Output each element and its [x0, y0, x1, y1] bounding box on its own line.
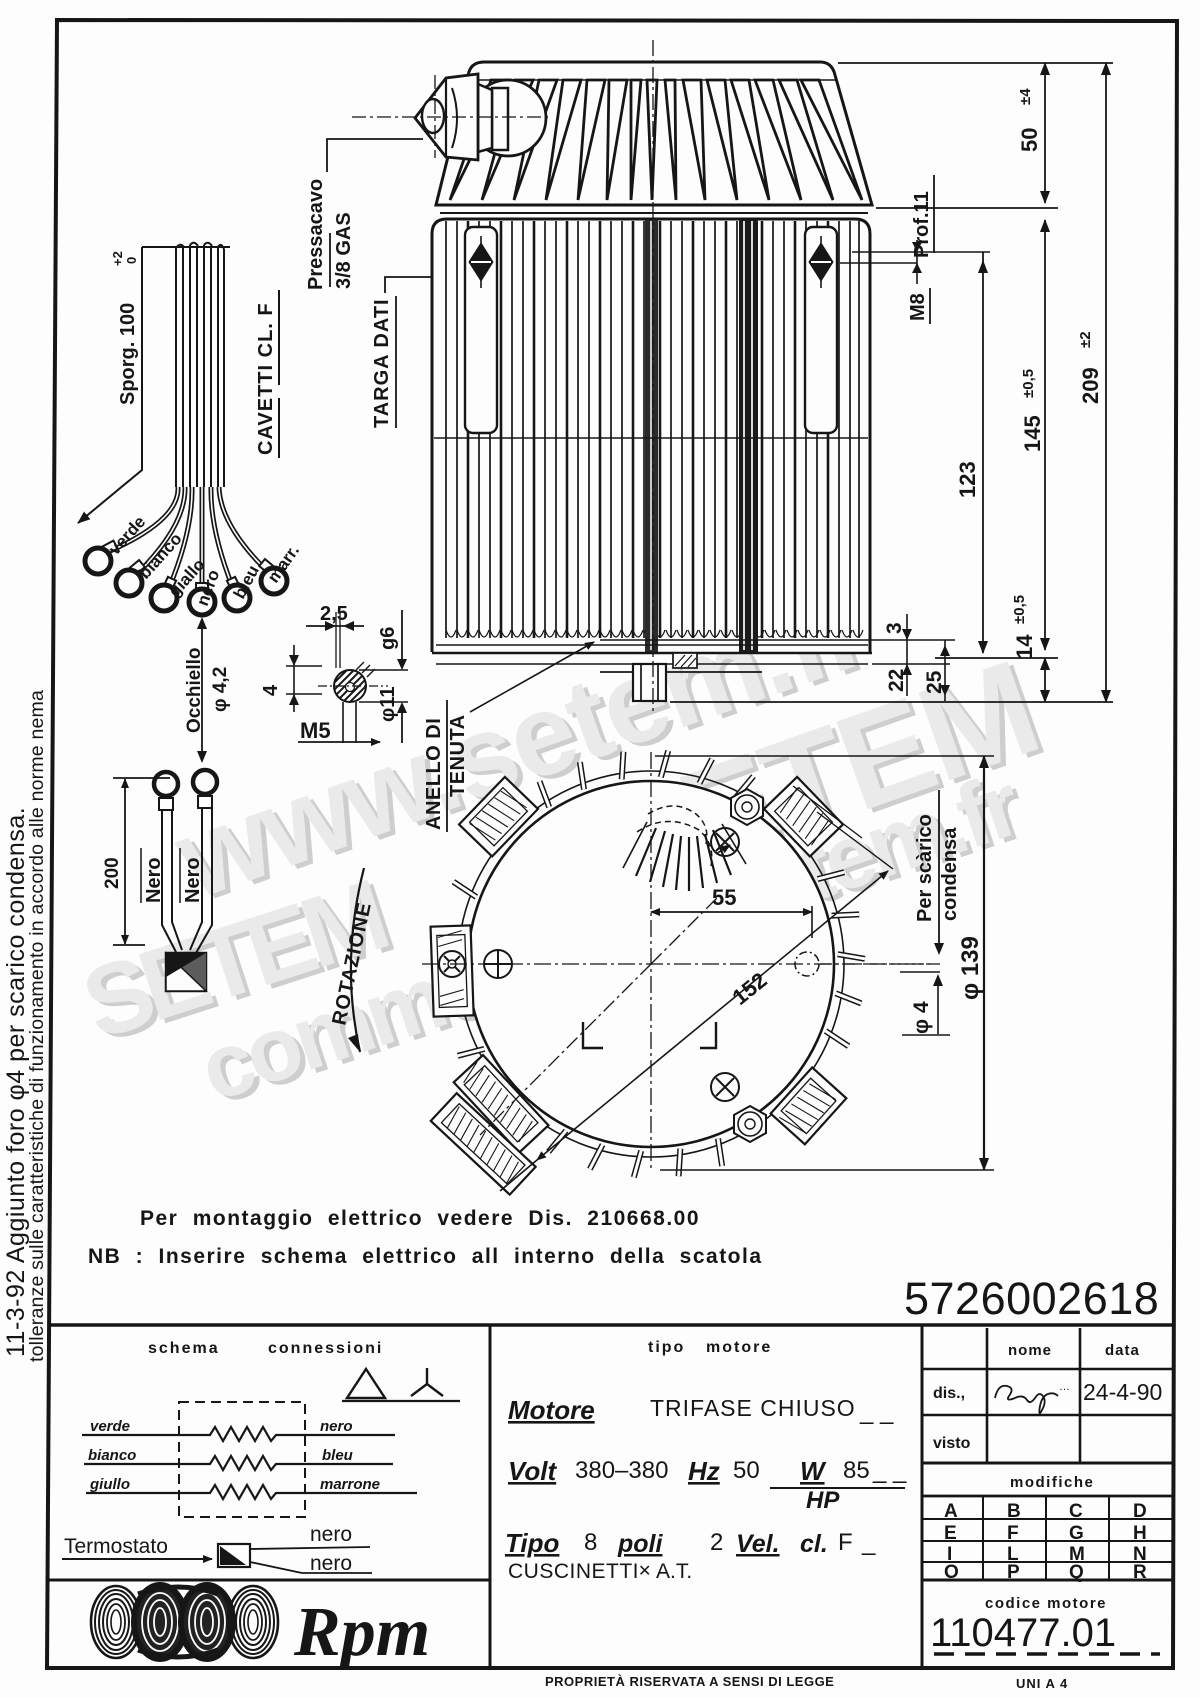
svg-text:55: 55 — [712, 885, 736, 910]
svg-text:F: F — [838, 1529, 853, 1556]
svg-text:14: 14 — [1012, 634, 1037, 659]
svg-text:tolleranze sulle caratteristic: tolleranze sulle caratteristiche di funz… — [26, 690, 48, 1362]
svg-text:φ 139: φ 139 — [957, 936, 984, 1000]
svg-text:O: O — [944, 1562, 959, 1583]
svg-text:Q: Q — [1069, 1562, 1084, 1583]
svg-text:Per montaggio elettrico ved: Per montaggio elettrico vedere Dis. 2106… — [140, 1207, 700, 1230]
svg-text:85: 85 — [843, 1457, 870, 1484]
svg-text:Rpm: Rpm — [293, 1594, 430, 1671]
svg-text:UNI A 4: UNI A 4 — [1016, 1676, 1068, 1691]
svg-text:NB : Inserire schema elett: NB : Inserire schema elettrico all inter… — [88, 1245, 763, 1268]
svg-text:verde: verde — [90, 1418, 130, 1435]
svg-text:poli: poli — [617, 1530, 663, 1558]
svg-text:E: E — [944, 1523, 957, 1544]
svg-text:W: W — [800, 1456, 827, 1486]
svg-text:2: 2 — [710, 1529, 723, 1556]
svg-text:bianco: bianco — [88, 1447, 136, 1464]
svg-text:_ _: _ _ — [872, 1457, 907, 1484]
svg-text:_: _ — [861, 1529, 876, 1556]
svg-text:nero: nero — [310, 1552, 352, 1575]
svg-text:Nero: Nero — [182, 857, 204, 903]
svg-text:Nero: Nero — [143, 857, 165, 903]
svg-text:4: 4 — [260, 684, 282, 696]
svg-text:modifiche: modifiche — [1010, 1474, 1094, 1491]
svg-text:123: 123 — [955, 461, 980, 498]
svg-text:TRIFASE CHIUSO: TRIFASE CHIUSO — [650, 1395, 856, 1421]
svg-text:marrone: marrone — [320, 1476, 380, 1493]
svg-text:±0,5: ±0,5 — [1011, 595, 1028, 624]
svg-text:+2: +2 — [110, 251, 125, 266]
svg-text:50: 50 — [1017, 128, 1042, 152]
svg-text:schema: schema — [148, 1340, 220, 1357]
svg-text:A.T.: A.T. — [656, 1560, 692, 1583]
svg-text:φ 4,2: φ 4,2 — [210, 667, 231, 712]
svg-text:dis.,: dis., — [933, 1385, 965, 1402]
svg-text:HP: HP — [806, 1487, 840, 1514]
svg-text:G: G — [1069, 1523, 1084, 1544]
svg-text:Vel.: Vel. — [736, 1530, 780, 1558]
svg-text:Motore: Motore — [508, 1395, 595, 1425]
svg-text:nero: nero — [310, 1523, 352, 1546]
svg-text:Termostato: Termostato — [64, 1535, 168, 1558]
svg-text:g6: g6 — [377, 627, 399, 650]
svg-text:±2: ±2 — [1077, 331, 1094, 348]
svg-text:M8: M8 — [907, 293, 929, 321]
svg-text:8: 8 — [584, 1529, 597, 1556]
svg-text:F: F — [1007, 1523, 1019, 1544]
svg-text:nero: nero — [320, 1418, 353, 1435]
svg-text:cl.: cl. — [800, 1530, 828, 1558]
svg-text:Pressacavo: Pressacavo — [305, 179, 327, 290]
svg-text:_ _: _ _ — [859, 1398, 894, 1425]
svg-text:ANELLO DI: ANELLO DI — [423, 718, 445, 830]
svg-text:TENUTA: TENUTA — [447, 714, 469, 797]
svg-text:φ11: φ11 — [377, 687, 399, 722]
svg-text:TARGA DATI: TARGA DATI — [371, 298, 393, 428]
svg-text:B: B — [1007, 1501, 1021, 1522]
svg-text:380–380: 380–380 — [575, 1457, 668, 1484]
svg-text:Hz: Hz — [688, 1456, 720, 1486]
svg-text:3/8 GAS: 3/8 GAS — [333, 212, 355, 289]
svg-text:209: 209 — [1078, 367, 1103, 404]
svg-text:condensa: condensa — [939, 827, 961, 921]
svg-text:Per scàrico: Per scàrico — [914, 814, 936, 922]
svg-text:25: 25 — [923, 670, 946, 694]
svg-text:P: P — [1007, 1562, 1020, 1583]
svg-text:±4: ±4 — [1017, 88, 1034, 105]
svg-text:connessioni: connessioni — [268, 1340, 383, 1357]
svg-text:D: D — [1133, 1501, 1147, 1522]
svg-text:PROPRIETÀ RISERVATA A SENSI DI: PROPRIETÀ RISERVATA A SENSI DI LEGGE — [545, 1674, 834, 1689]
svg-text:bleu: bleu — [322, 1447, 353, 1464]
svg-text:50: 50 — [733, 1457, 760, 1484]
svg-text:A: A — [944, 1501, 958, 1522]
svg-text:✕: ✕ — [638, 1563, 651, 1580]
svg-text:H: H — [1133, 1523, 1147, 1544]
svg-text:200: 200 — [102, 857, 123, 889]
svg-text:φ 4: φ 4 — [910, 1001, 933, 1034]
svg-text:22: 22 — [885, 669, 908, 692]
svg-text:Sporg. 100: Sporg. 100 — [117, 303, 139, 405]
svg-text:…: … — [1059, 1381, 1070, 1393]
svg-text:CAVETTI CL. F: CAVETTI CL. F — [255, 302, 277, 455]
svg-text:3: 3 — [883, 622, 906, 634]
svg-text:M5: M5 — [300, 718, 331, 743]
svg-text:Tipo: Tipo — [505, 1528, 560, 1558]
svg-text:data: data — [1105, 1342, 1140, 1359]
svg-text:0: 0 — [124, 257, 139, 264]
svg-text:±0,5: ±0,5 — [1020, 369, 1037, 398]
svg-text:Volt: Volt — [508, 1456, 557, 1486]
svg-text:5726002618: 5726002618 — [904, 1273, 1159, 1324]
svg-text:110477.01: 110477.01 — [930, 1611, 1116, 1655]
svg-text:Prof.11: Prof.11 — [911, 191, 933, 258]
svg-text:145: 145 — [1020, 415, 1045, 452]
svg-text:C: C — [1069, 1501, 1083, 1522]
svg-text:codice motore: codice motore — [985, 1595, 1107, 1612]
svg-text:CUSCINETTI: CUSCINETTI — [508, 1560, 639, 1583]
svg-text:2,5: 2,5 — [320, 603, 348, 625]
svg-text:nome: nome — [1008, 1342, 1052, 1359]
svg-text:tipo: tipo — [648, 1339, 685, 1356]
svg-text:24-4-90: 24-4-90 — [1083, 1379, 1162, 1405]
svg-text:visto: visto — [933, 1435, 971, 1452]
svg-text:motore: motore — [706, 1339, 772, 1356]
svg-text:giullo: giullo — [89, 1476, 130, 1493]
svg-text:R: R — [1133, 1562, 1147, 1583]
